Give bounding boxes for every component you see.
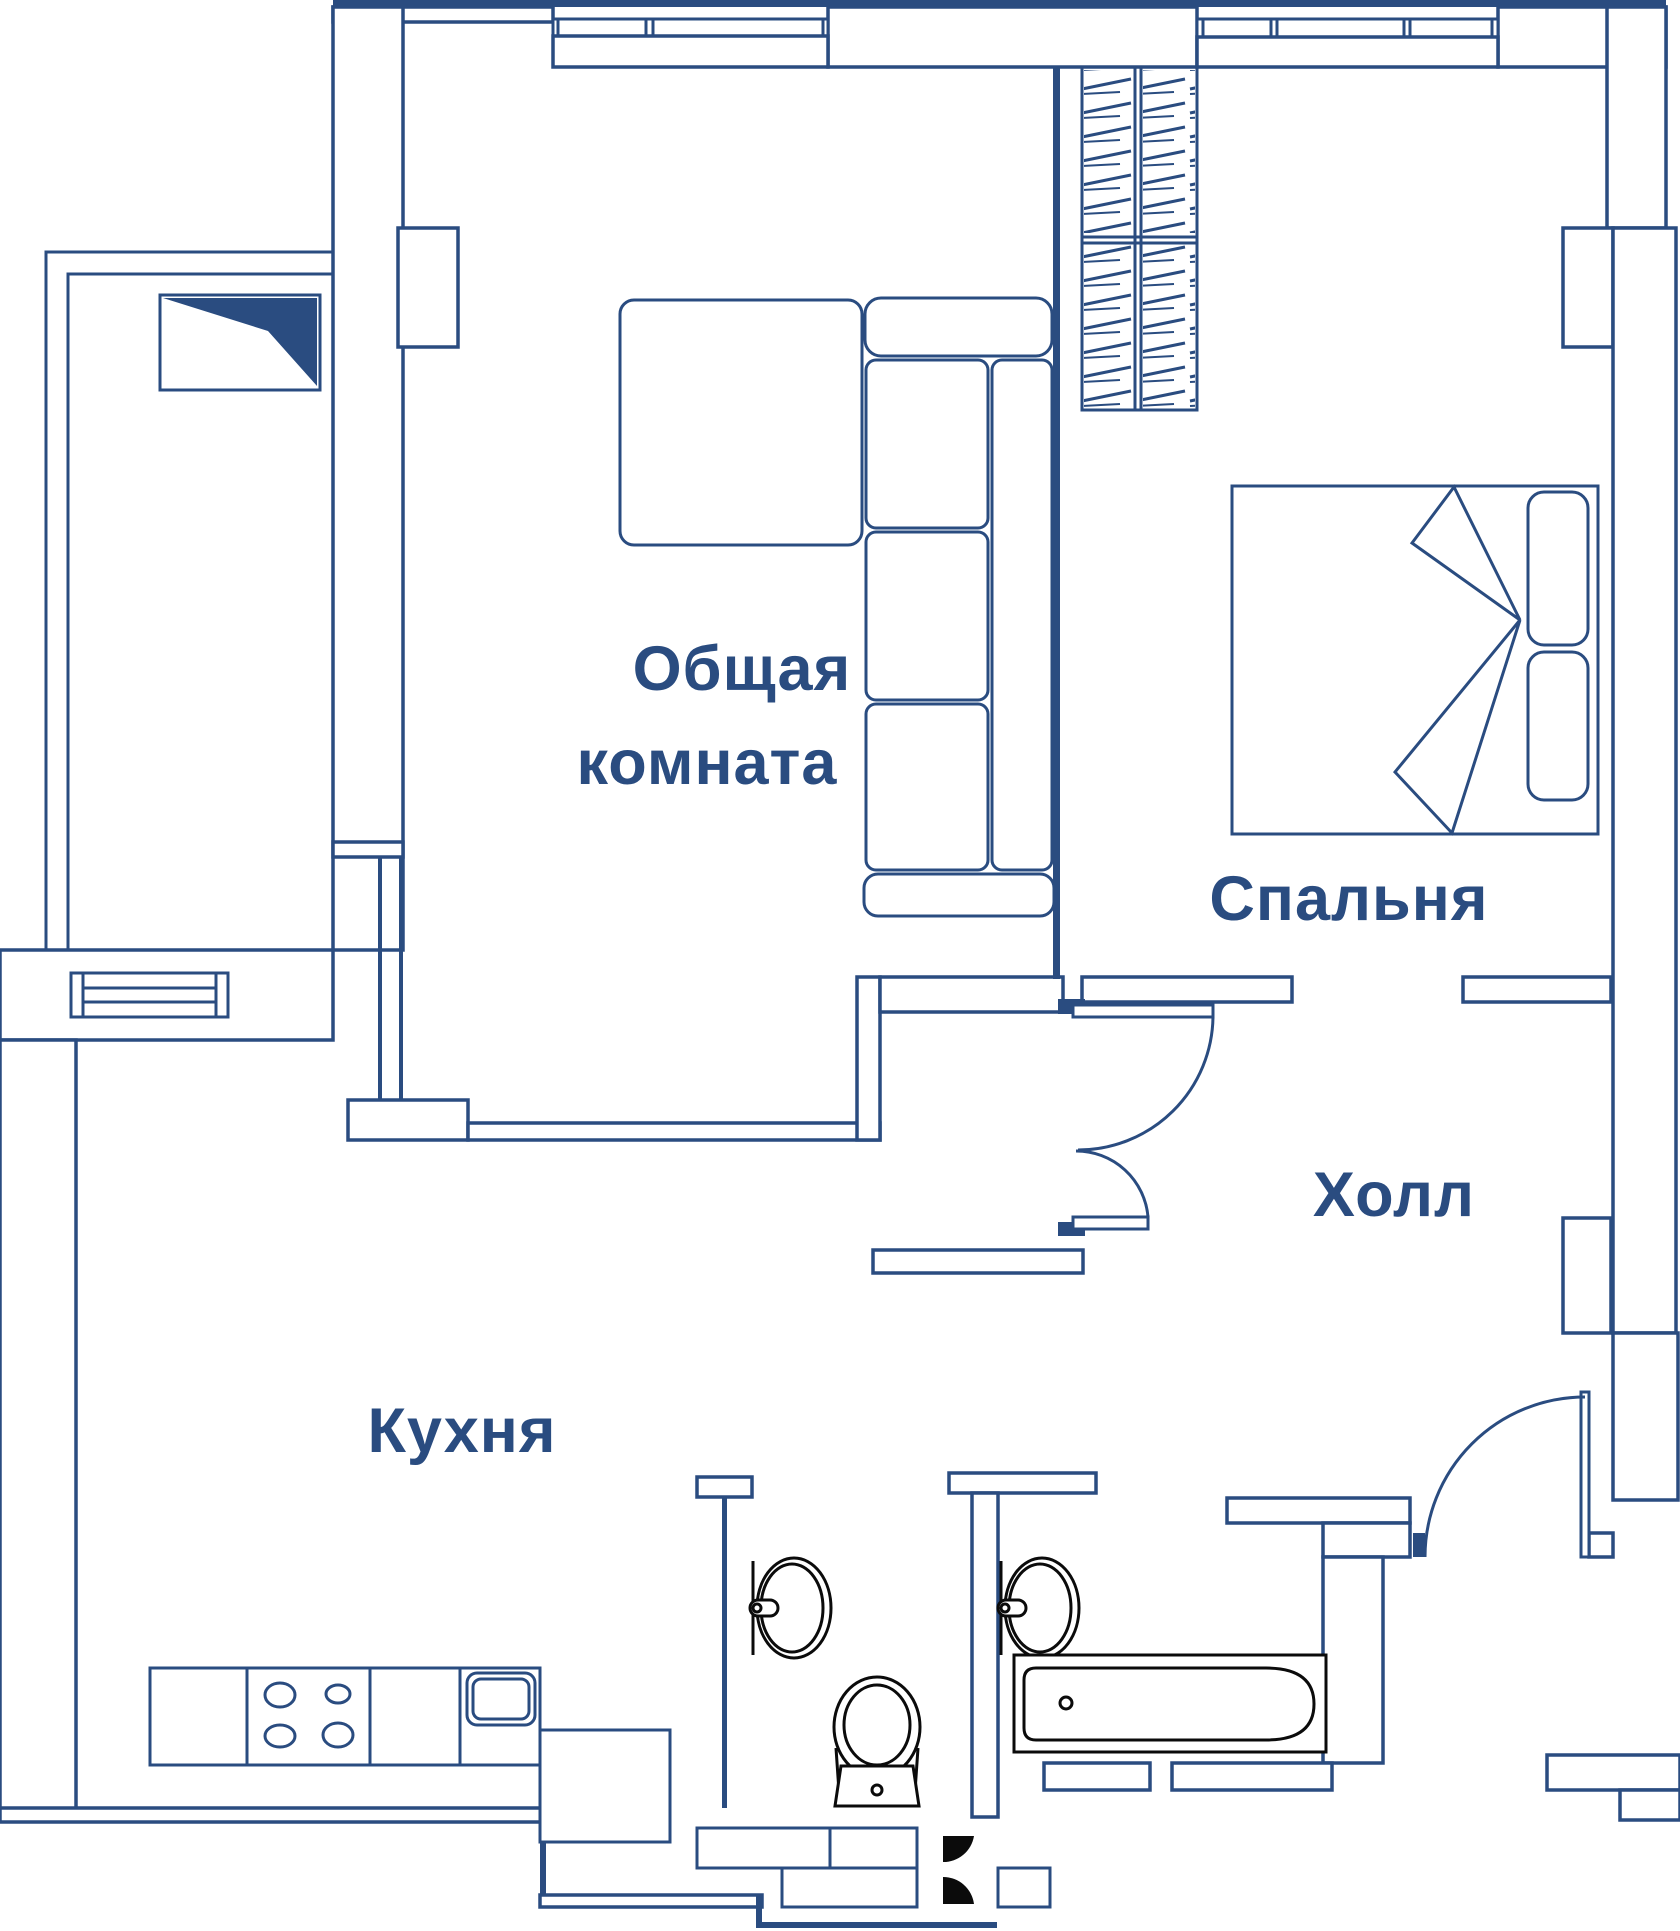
wall-bottom-right-a <box>1547 1755 1680 1790</box>
wc-door-swing <box>943 1836 974 1862</box>
wash-basin-bathroom <box>998 1558 1079 1658</box>
wall-bedroom-hall-right <box>1463 977 1611 1002</box>
wall-right-main <box>1613 228 1676 1333</box>
wall-left-lower <box>0 1040 76 1810</box>
wall-vestibule-left <box>540 1895 762 1907</box>
room-label-bedroom: Спальня <box>1209 864 1488 934</box>
room-label-living-line2: комната <box>577 728 838 798</box>
wall-bath-bottom-left <box>1044 1763 1150 1790</box>
wall-bottom-right-b <box>1620 1790 1680 1820</box>
double-bed <box>1232 486 1598 834</box>
wash-basin-wc <box>750 1558 831 1658</box>
wall-step-block <box>857 977 880 1140</box>
pillar-kitchen-left <box>348 1100 468 1140</box>
square-table <box>620 300 862 545</box>
pilaster-hall <box>1563 1218 1611 1333</box>
floor-plan-svg: Общая комната Спальня Холл Кухня <box>0 0 1680 1931</box>
tv-unit <box>160 295 320 390</box>
wall-wc-header-right <box>949 1473 1096 1493</box>
bathtub <box>1014 1655 1326 1752</box>
pilaster-bedroom <box>1563 228 1613 347</box>
wall-wc-header-left <box>697 1477 752 1497</box>
wardrobe <box>1082 67 1197 410</box>
room-label-living-line1: Общая <box>633 634 852 704</box>
wall-living-bottom <box>880 977 1063 1012</box>
living-hall-door-small <box>1058 1151 1148 1236</box>
wall-bath-top <box>1227 1498 1410 1523</box>
window-living <box>553 19 828 67</box>
floor-plan-page: Общая комната Спальня Холл Кухня <box>0 0 1680 1931</box>
corner-sofa <box>864 298 1054 916</box>
toilet <box>834 1677 920 1806</box>
window-kitchen <box>71 973 228 1017</box>
wall-top-middle <box>828 7 1197 67</box>
pilaster-left <box>398 228 458 347</box>
wall-kitchen-hall <box>873 1250 1083 1273</box>
living-hall-door-large <box>1058 999 1213 1150</box>
room-label-hall: Холл <box>1313 1160 1475 1230</box>
room-label-kitchen: Кухня <box>367 1396 556 1466</box>
wall-right-entry <box>1613 1333 1678 1500</box>
entry-door <box>1413 1392 1613 1557</box>
wall-bath-right <box>1323 1557 1383 1763</box>
kitchen-appliance <box>540 1730 670 1842</box>
window-bedroom <box>1197 19 1498 67</box>
wall-bath-corner <box>1323 1523 1410 1557</box>
wall-kitchen-bottom <box>0 1808 560 1822</box>
wall-bedroom-hall-left <box>1082 977 1292 1002</box>
wall-wc-left <box>722 1497 727 1808</box>
wall-left-step <box>333 842 403 857</box>
wall-left-living <box>333 7 403 950</box>
wall-right-upper <box>1607 7 1666 228</box>
wall-bedroom-left <box>1053 67 1060 979</box>
wall-bath-bottom-right <box>1172 1763 1332 1790</box>
wall-wc-bath <box>972 1493 998 1817</box>
walls <box>0 0 1680 1928</box>
wall-kitchen-living <box>468 1123 880 1140</box>
bath-door-swing <box>943 1877 974 1904</box>
